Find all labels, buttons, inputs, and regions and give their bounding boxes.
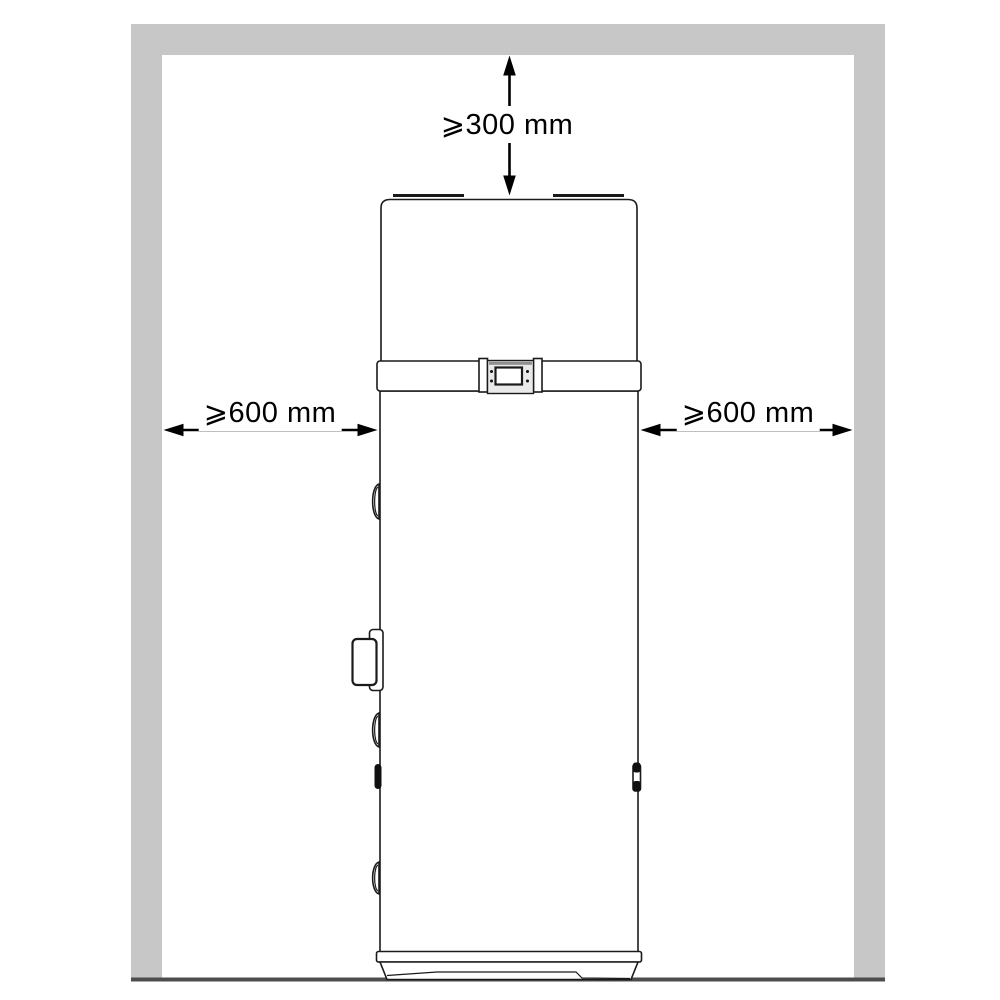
top-clearance-label: ⩾300 mm <box>436 106 579 143</box>
junction-box <box>353 639 377 685</box>
display-button-dot <box>526 370 529 373</box>
display-left-bar <box>479 359 488 393</box>
display-button-dot <box>526 380 529 383</box>
arrow-right-icon <box>833 424 853 437</box>
arrow-left-icon <box>164 424 184 437</box>
base-plinth <box>380 962 638 980</box>
installation-clearance-diagram: ⩾300 mm ⩾600 mm ⩾600 mm <box>0 0 1000 1000</box>
arrow-down-icon <box>503 176 516 196</box>
display-button-dot <box>490 380 493 383</box>
side-connections <box>353 484 384 894</box>
right-clearance-label: ⩾600 mm <box>677 394 820 431</box>
small-fitting-solid <box>375 764 382 789</box>
tank-upper-section <box>381 200 637 363</box>
appliance-heat-pump-tank <box>353 196 642 980</box>
right-wall <box>854 24 885 978</box>
display-screen <box>496 368 523 385</box>
left-wall <box>131 24 162 978</box>
display-right-bar <box>534 359 543 393</box>
ceiling-wall <box>131 24 885 55</box>
hinge-top-cap <box>633 763 641 773</box>
display-panel-top-strip <box>489 362 532 365</box>
left-clearance-label: ⩾600 mm <box>199 394 342 431</box>
control-display-assembly <box>479 359 542 394</box>
arrow-up-icon <box>503 56 516 76</box>
arrow-left-icon <box>641 424 661 437</box>
arrow-right-icon <box>358 424 378 437</box>
bottom-trim-ring <box>377 952 642 963</box>
hinge-bottom-cap <box>633 781 641 792</box>
tank-main-body <box>380 391 638 952</box>
right-edge-fitting <box>633 763 641 792</box>
diagram-linework <box>0 0 1000 1000</box>
display-button-dot <box>490 370 493 373</box>
